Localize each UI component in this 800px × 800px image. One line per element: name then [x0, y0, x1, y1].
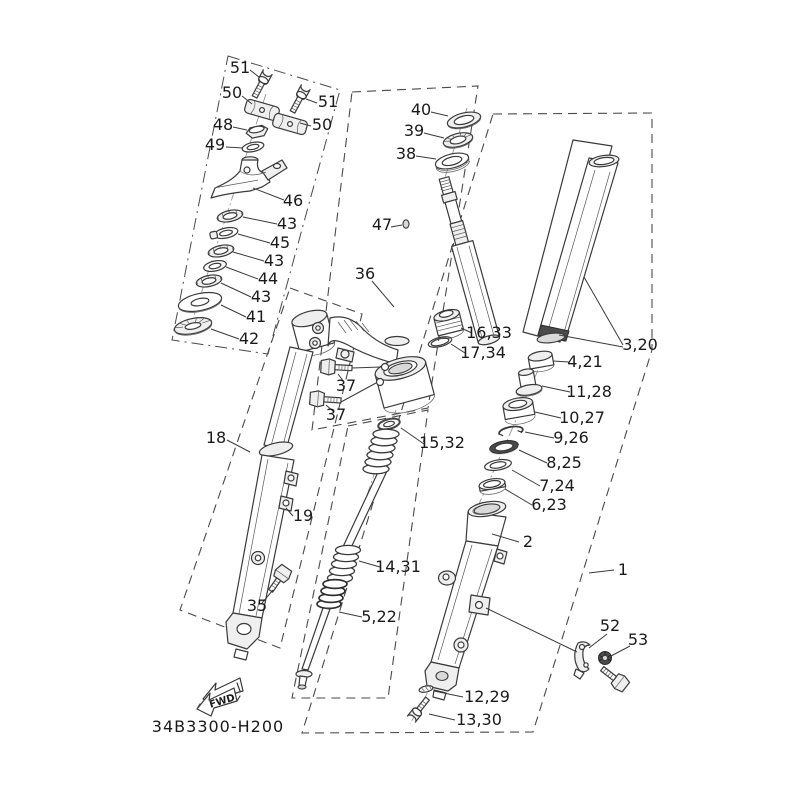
guide-10-27 [502, 396, 536, 427]
leader-line-39 [424, 133, 444, 138]
part-label-47: 47 [372, 215, 392, 234]
part-label-13-30: 13,30 [456, 710, 502, 729]
parts-diagram-page: 5150515048494643454344434142181935364039… [0, 0, 800, 800]
part-label-3-20: 3,20 [622, 335, 658, 354]
race-38 [434, 150, 471, 175]
leader-line-51-left [250, 70, 259, 77]
damper-rod-upper [341, 470, 387, 552]
leader-line-18 [227, 440, 250, 452]
oilseal-8-25 [489, 439, 520, 457]
assembly-line-37-1 [352, 367, 381, 368]
part-label-19: 19 [293, 506, 313, 525]
part-label-43-3: 43 [251, 287, 271, 306]
part-label-37-2: 37 [326, 405, 346, 424]
damper-parts [296, 417, 401, 689]
part-label-51-right: 51 [318, 92, 338, 111]
part-label-39: 39 [404, 121, 424, 140]
part-label-53: 53 [628, 630, 648, 649]
part-label-9-26: 9,26 [553, 428, 589, 447]
part-label-14-31: 14,31 [375, 557, 421, 576]
leader-line-52 [589, 634, 607, 648]
damper-top-spring [363, 429, 399, 474]
leader-line-3-20 [559, 335, 623, 347]
part-label-10-27: 10,27 [559, 408, 605, 427]
part-label-2: 2 [523, 532, 533, 551]
spring-14-31 [328, 545, 361, 582]
leader-line-9-26 [525, 432, 554, 438]
leader-line-43-2 [233, 252, 264, 261]
leader-line-48 [233, 127, 247, 130]
ringnut-43-3 [195, 273, 223, 289]
nut-48 [245, 124, 269, 139]
leader-line-51-right [306, 99, 317, 103]
part-label-17-34: 17,34 [460, 343, 506, 362]
leader-line-8-25 [519, 450, 547, 463]
leader-line-36 [372, 281, 394, 307]
part-label-48: 48 [213, 115, 233, 134]
ringnut-43-1 [216, 208, 244, 224]
part-label-6-23: 6,23 [531, 495, 567, 514]
leader-line-13-30 [429, 714, 455, 720]
leader-line-38 [416, 156, 436, 159]
pin-47 [403, 220, 409, 228]
assembly-line-52 [486, 608, 577, 652]
part-label-46: 46 [283, 191, 303, 210]
clamp-52 [574, 642, 590, 679]
leader-line-44 [226, 267, 258, 279]
crown-46 [211, 157, 287, 198]
fork-exploded-diagram: 5150515048494643454344434142181935364039… [0, 0, 800, 800]
leader-line-46 [253, 188, 284, 200]
washer-12-29 [419, 685, 434, 694]
part-label-44: 44 [258, 269, 278, 288]
clip-9-26 [498, 425, 523, 436]
bolt-13-30-icon [408, 696, 432, 723]
leader-line-47 [391, 225, 402, 227]
part-label-49: 49 [205, 135, 225, 154]
part-label-18: 18 [206, 428, 226, 447]
left-upper-tube [264, 347, 313, 450]
part-label-40: 40 [411, 100, 431, 119]
part-label-1: 1 [618, 560, 628, 579]
leader-line-43-3 [221, 283, 251, 297]
part-label-43-2: 43 [264, 251, 284, 270]
leader-line-6-23 [505, 489, 532, 505]
leader-line-41 [221, 305, 246, 317]
oring-17-34 [427, 335, 452, 350]
bolt-clamp-icon [597, 662, 630, 693]
cap-16-33 [433, 307, 465, 340]
washer-7-24 [484, 458, 512, 473]
leader-line-10-27 [535, 412, 561, 418]
part-label-7-24: 7,24 [539, 476, 575, 495]
right-fork-parts [408, 140, 631, 722]
leader-line-43-1 [243, 217, 277, 224]
bearing-42 [173, 315, 213, 339]
part-label-37-1: 37 [336, 376, 356, 395]
leader-line-49 [226, 147, 243, 148]
leader-line-7-24 [512, 470, 540, 486]
leader-line-42 [211, 329, 239, 339]
dustseal-6-23 [478, 477, 506, 496]
bolt-51-left-icon [250, 70, 272, 99]
part-label-41: 41 [246, 307, 266, 326]
part-label-51-left: 51 [230, 58, 250, 77]
part-label-52: 52 [600, 616, 620, 635]
part-label-code: 34B3300-H200 [152, 717, 284, 736]
part-label-4-21: 4,21 [567, 352, 603, 371]
part-label-50-left: 50 [222, 83, 242, 102]
left-fork-parts [226, 347, 313, 660]
bearing-39 [442, 130, 474, 151]
part-label-35: 35 [247, 596, 267, 615]
damper-5-22 [296, 580, 347, 689]
cover-40 [446, 109, 483, 132]
leader-line-45 [238, 234, 270, 243]
part-label-50-right: 50 [312, 115, 332, 134]
leader-line-3-20 [584, 277, 623, 345]
ringnut-43-2 [207, 243, 235, 259]
part-label-42: 42 [239, 329, 259, 348]
part-label-8-25: 8,25 [546, 453, 582, 472]
part-label-15-32: 15,32 [419, 433, 465, 452]
outer-tube-2 [425, 499, 507, 700]
lockwasher-45 [209, 226, 238, 242]
leader-line-40 [431, 112, 448, 116]
cover-41 [177, 289, 224, 316]
nut-53 [599, 652, 612, 665]
part-label-16-33: 16,33 [466, 323, 512, 342]
part-label-11-28: 11,28 [566, 382, 612, 401]
part-label-43-1: 43 [277, 214, 297, 233]
leader-line-5-22 [339, 612, 362, 617]
washer-49 [241, 140, 264, 153]
part-label-38: 38 [396, 144, 416, 163]
part-label-45: 45 [270, 233, 290, 252]
washer-44 [203, 259, 228, 274]
part-label-12-29: 12,29 [464, 687, 510, 706]
part-label-36: 36 [355, 264, 375, 283]
leader-line-1 [589, 570, 614, 573]
part-label-5-22: 5,22 [361, 607, 397, 626]
